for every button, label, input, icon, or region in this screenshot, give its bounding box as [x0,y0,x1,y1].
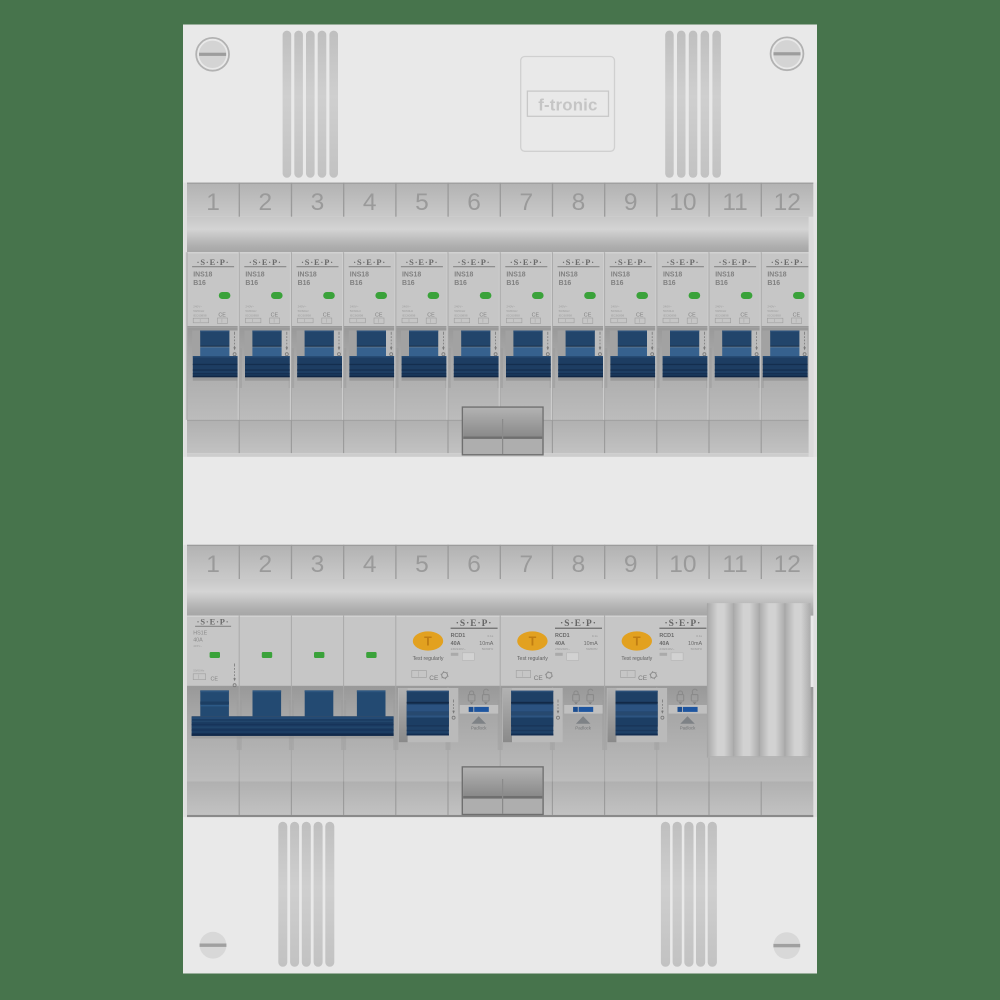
svg-text:4: 4 [363,189,377,216]
svg-text:·S·E·P·: ·S·E·P· [510,258,543,267]
svg-text:5: 5 [415,551,429,578]
svg-text:B16: B16 [454,280,467,287]
svg-text:CE: CE [218,313,226,319]
svg-text:6: 6 [467,189,481,216]
svg-text:50/60Hz: 50/60Hz [506,309,518,313]
svg-text:IEC60898: IEC60898 [193,313,207,317]
svg-text:INS18: INS18 [454,271,473,278]
svg-text:·S·E·P·: ·S·E·P· [614,258,647,267]
svg-text:INS18: INS18 [611,271,630,278]
svg-text:50/60Hz: 50/60Hz [691,647,703,651]
svg-text:12: 12 [774,551,801,578]
svg-text:240V~: 240V~ [245,304,254,308]
svg-text:f-tronic: f-tronic [538,95,597,114]
svg-text:50/60Hz: 50/60Hz [350,309,362,313]
svg-text:50/60Hz: 50/60Hz [454,309,466,313]
svg-text:240V~: 240V~ [559,304,568,308]
svg-text:·S·E·P·: ·S·E·P· [301,258,334,267]
svg-text:50/60Hz: 50/60Hz [611,309,623,313]
svg-text:CE: CE [584,313,592,319]
svg-text:·S·E·P·: ·S·E·P· [560,619,597,629]
svg-text:IEC60898: IEC60898 [298,313,312,317]
svg-text:B16: B16 [715,280,728,287]
svg-text:6: 6 [467,551,481,578]
svg-text:CE: CE [638,675,648,682]
svg-text:Padlock: Padlock [680,725,696,730]
svg-text:12: 12 [774,189,801,216]
svg-text:CE: CE [532,313,540,319]
svg-text:7: 7 [519,189,533,216]
svg-text:240V~: 240V~ [454,304,463,308]
svg-text:IEC60898: IEC60898 [350,313,364,317]
svg-text:240V~: 240V~ [715,304,724,308]
svg-text:IEC60898: IEC60898 [715,313,729,317]
svg-text:INS18: INS18 [715,271,734,278]
svg-text:0.1s: 0.1s [696,634,702,638]
svg-text:CE: CE [323,313,331,319]
svg-text:T: T [529,635,537,649]
svg-text:·S·E·P·: ·S·E·P· [666,258,699,267]
svg-text:CE: CE [271,313,279,319]
svg-text:IEC60898: IEC60898 [663,313,677,317]
svg-text:IEC60898: IEC60898 [559,313,573,317]
svg-text:50/60Hz: 50/60Hz [402,309,414,313]
svg-text:·S·E·P·: ·S·E·P· [197,618,230,627]
svg-text:10mA: 10mA [584,641,598,647]
svg-text:INS18: INS18 [402,271,421,278]
svg-text:IEC60898: IEC60898 [454,313,468,317]
svg-text:IEC60898: IEC60898 [767,313,781,317]
svg-text:40A: 40A [451,641,461,647]
svg-text:10: 10 [669,189,696,216]
svg-text:50/60Hz: 50/60Hz [298,309,310,313]
svg-text:·S·E·P·: ·S·E·P· [719,258,752,267]
svg-text:INS18: INS18 [298,271,317,278]
svg-text:CE: CE [375,313,383,319]
svg-text:50/60Hz: 50/60Hz [559,309,571,313]
svg-text:240V~: 240V~ [767,304,776,308]
svg-text:50/60Hz: 50/60Hz [586,647,598,651]
svg-text:CE: CE [793,313,801,319]
svg-text:CE: CE [429,675,439,682]
svg-text:CE: CE [427,313,435,319]
svg-text:B16: B16 [245,280,258,287]
svg-text:50/60Hz: 50/60Hz [767,309,779,313]
svg-text:230/240V~: 230/240V~ [555,647,570,651]
svg-text:50/60Hz: 50/60Hz [193,309,205,313]
svg-text:10mA: 10mA [479,641,493,647]
svg-text:CE: CE [740,313,748,319]
svg-text:240V~: 240V~ [350,304,359,308]
svg-text:50/60Hz: 50/60Hz [715,309,727,313]
svg-text:11: 11 [722,189,747,216]
svg-text:CE: CE [636,313,644,319]
svg-text:240V~: 240V~ [506,304,515,308]
svg-text:40A: 40A [659,641,669,647]
svg-text:50/60Hz: 50/60Hz [245,309,257,313]
svg-text:B16: B16 [611,280,624,287]
svg-text:9: 9 [624,189,638,216]
svg-text:·S·E·P·: ·S·E·P· [562,258,595,267]
svg-text:INS18: INS18 [559,271,578,278]
svg-text:T: T [633,635,641,649]
svg-text:8: 8 [572,551,586,578]
svg-text:2: 2 [258,551,272,578]
svg-text:1: 1 [206,551,220,578]
svg-text:40A: 40A [193,638,203,644]
svg-text:HS1E: HS1E [193,631,207,637]
svg-text:5: 5 [415,189,429,216]
svg-text:B16: B16 [402,280,415,287]
svg-text:·S·E·P·: ·S·E·P· [771,258,804,267]
svg-text:50/60Hz: 50/60Hz [663,309,675,313]
svg-text:B16: B16 [506,280,519,287]
svg-text:INS18: INS18 [506,271,525,278]
svg-text:230/240V~: 230/240V~ [451,647,466,651]
svg-text:Padlock: Padlock [575,725,591,730]
svg-text:INS18: INS18 [767,271,786,278]
svg-text:B16: B16 [193,280,206,287]
svg-text:Test regularly: Test regularly [517,656,548,662]
svg-text:·S·E·P·: ·S·E·P· [456,619,493,629]
svg-text:4: 4 [363,551,377,578]
svg-text:B16: B16 [559,280,572,287]
svg-text:·S·E·P·: ·S·E·P· [405,258,438,267]
svg-text:2: 2 [258,189,272,216]
svg-text:IEC60898: IEC60898 [611,313,625,317]
svg-text:8: 8 [572,189,586,216]
svg-text:40A: 40A [555,641,565,647]
svg-text:7: 7 [519,551,533,578]
svg-text:INS18: INS18 [350,271,369,278]
svg-text:50/60Hz: 50/60Hz [482,647,494,651]
svg-text:·S·E·P·: ·S·E·P· [353,258,386,267]
svg-text:RCD1: RCD1 [555,633,570,639]
svg-text:0.1s: 0.1s [592,634,598,638]
svg-text:240V~: 240V~ [663,304,672,308]
svg-text:CE: CE [688,313,696,319]
svg-text:CE: CE [211,677,219,683]
svg-text:INS18: INS18 [245,271,264,278]
svg-text:240V~: 240V~ [611,304,620,308]
svg-text:230/240V~: 230/240V~ [659,647,674,651]
svg-text:B16: B16 [298,280,311,287]
svg-text:10: 10 [669,551,696,578]
svg-text:INS18: INS18 [663,271,682,278]
svg-text:IEC60898: IEC60898 [506,313,520,317]
svg-text:·S·E·P·: ·S·E·P· [665,619,702,629]
svg-text:9: 9 [624,551,638,578]
svg-text:CE: CE [479,313,487,319]
svg-text:RCD1: RCD1 [659,633,674,639]
svg-text:415V~: 415V~ [193,644,202,648]
svg-text:Test regularly: Test regularly [413,656,444,662]
svg-text:3: 3 [311,189,325,216]
svg-text:10mA: 10mA [688,641,702,647]
svg-text:·S·E·P·: ·S·E·P· [249,258,282,267]
svg-text:T: T [424,635,432,649]
svg-text:50/60Hz: 50/60Hz [193,669,205,673]
svg-text:0.1s: 0.1s [487,634,493,638]
svg-text:Test regularly: Test regularly [621,656,652,662]
svg-text:1: 1 [206,189,220,216]
svg-text:·S·E·P·: ·S·E·P· [458,258,491,267]
svg-text:INS18: INS18 [193,271,212,278]
svg-text:3: 3 [311,551,325,578]
svg-text:Padlock: Padlock [471,725,487,730]
svg-text:IEC60898: IEC60898 [402,313,416,317]
svg-text:B16: B16 [350,280,363,287]
svg-text:·S·E·P·: ·S·E·P· [197,258,230,267]
svg-text:240V~: 240V~ [402,304,411,308]
svg-text:B16: B16 [767,280,780,287]
svg-text:RCD1: RCD1 [451,633,466,639]
svg-text:240V~: 240V~ [298,304,307,308]
svg-text:CE: CE [534,675,544,682]
svg-text:B16: B16 [663,280,676,287]
svg-text:IEC60898: IEC60898 [245,313,259,317]
svg-text:240V~: 240V~ [193,304,202,308]
svg-text:11: 11 [722,551,747,578]
